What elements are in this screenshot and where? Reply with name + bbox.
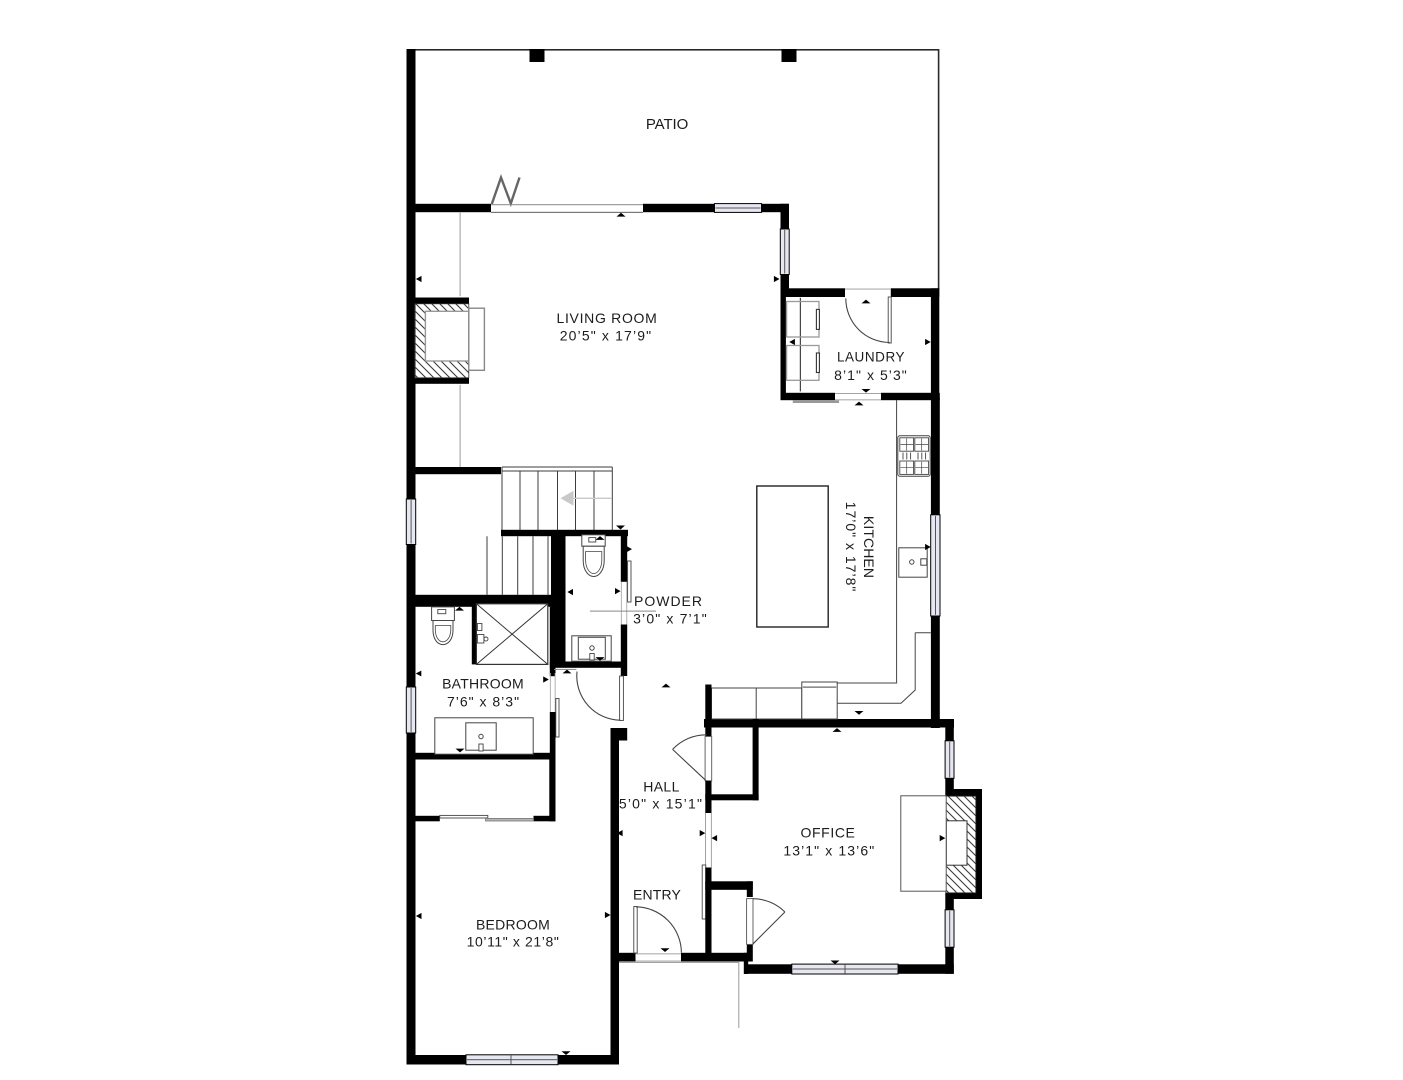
svg-text:BEDROOM: BEDROOM [476, 917, 550, 933]
svg-text:PATIO: PATIO [646, 116, 688, 133]
svg-text:KITCHEN: KITCHEN [861, 516, 877, 578]
svg-text:POWDER: POWDER [634, 593, 703, 609]
svg-text:17’0" x 17’8": 17’0" x 17’8" [843, 502, 859, 593]
svg-text:OFFICE: OFFICE [801, 825, 856, 841]
svg-text:7’6" x 8’3": 7’6" x 8’3" [447, 694, 520, 710]
svg-text:10’11" x 21’8": 10’11" x 21’8" [467, 934, 560, 950]
svg-text:LAUNDRY: LAUNDRY [837, 350, 905, 365]
svg-text:BATHROOM: BATHROOM [442, 676, 524, 692]
svg-text:20’5" x 17’9": 20’5" x 17’9" [560, 328, 653, 344]
svg-text:HALL: HALL [643, 779, 680, 795]
svg-text:5’0" x 15’1": 5’0" x 15’1" [619, 796, 703, 812]
svg-text:ENTRY: ENTRY [633, 887, 681, 903]
svg-text:13’1" x 13’6": 13’1" x 13’6" [783, 842, 875, 858]
svg-text:LIVING ROOM: LIVING ROOM [556, 310, 657, 326]
svg-text:8’1" x 5’3": 8’1" x 5’3" [834, 367, 908, 383]
svg-text:3’0" x 7’1": 3’0" x 7’1" [633, 611, 708, 627]
